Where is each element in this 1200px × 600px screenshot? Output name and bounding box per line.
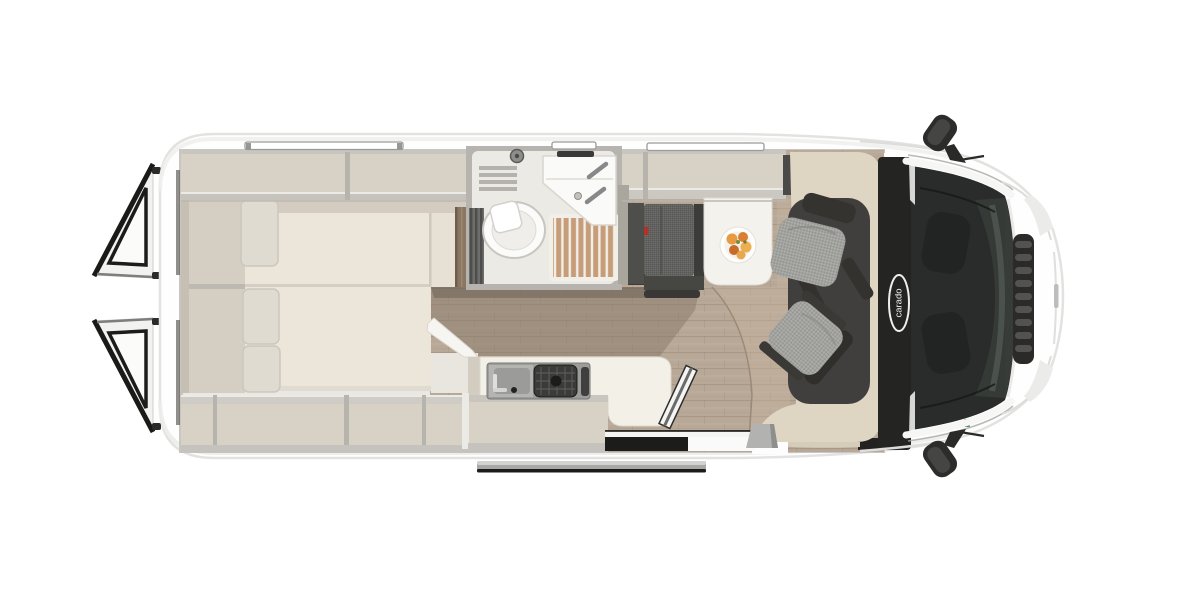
svg-text:carado: carado bbox=[894, 288, 905, 317]
